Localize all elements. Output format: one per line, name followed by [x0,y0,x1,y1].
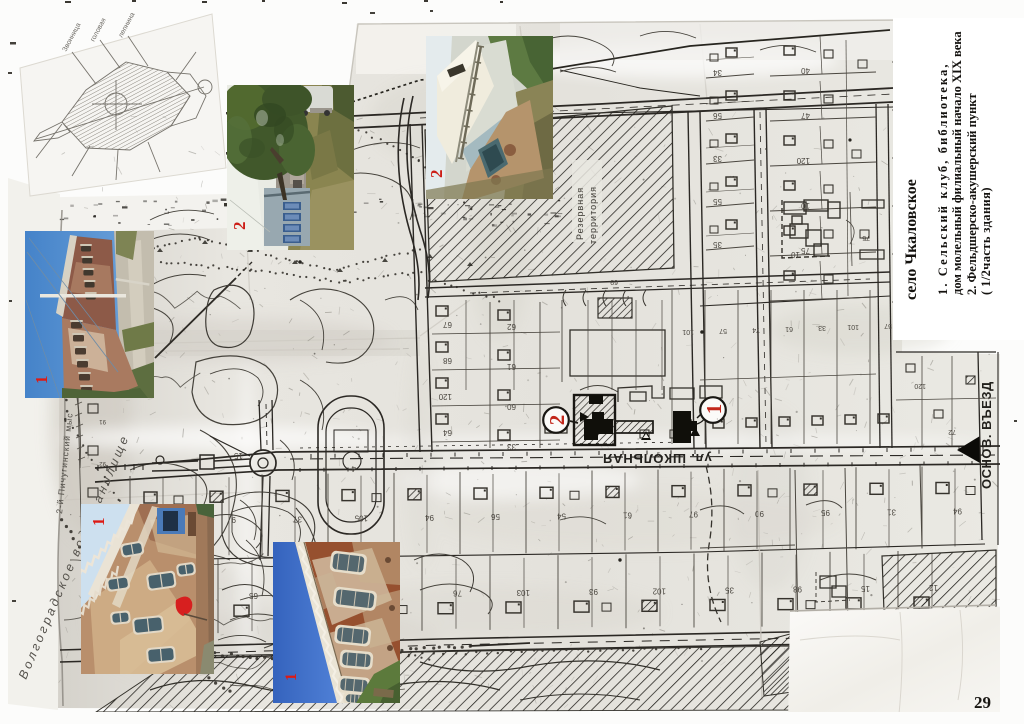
svg-text:территория: территория [588,186,598,244]
svg-text:2: 2 [230,222,249,231]
svg-text:101: 101 [847,323,859,330]
svg-text:10: 10 [791,250,800,259]
svg-text:дом молельный филиальный начал: дом молельный филиальный начало XIX века [950,31,964,295]
svg-text:29: 29 [974,693,991,712]
svg-text:56: 56 [491,512,500,521]
svg-text:15: 15 [234,451,243,460]
svg-text:35: 35 [725,585,734,594]
svg-text:64: 64 [443,428,452,437]
svg-text:94: 94 [953,506,962,515]
svg-text:Резервная: Резервная [575,187,585,240]
svg-text:33: 33 [713,154,722,163]
svg-text:47: 47 [801,111,810,120]
svg-text:2: 2 [427,170,446,179]
svg-text:( 1/2часть здания): ( 1/2часть здания) [979,187,993,295]
svg-text:57: 57 [884,322,892,329]
svg-text:120: 120 [914,382,926,389]
svg-text:69: 69 [610,278,618,285]
svg-text:105: 105 [354,514,368,523]
svg-text:2: 2 [545,415,569,426]
svg-text:61: 61 [785,325,793,332]
svg-text:ОСНОВ. ВЪЕЗД: ОСНОВ. ВЪЕЗД [979,381,994,489]
svg-text:76: 76 [453,589,462,598]
svg-text:103: 103 [516,588,530,597]
svg-text:101: 101 [682,328,694,335]
svg-text:62: 62 [507,322,516,331]
svg-text:1: 1 [89,518,108,527]
svg-text:34: 34 [713,68,722,77]
svg-text:120: 120 [438,392,452,401]
svg-text:1: 1 [702,404,726,415]
svg-text:37: 37 [293,514,302,523]
svg-text:15: 15 [861,584,870,593]
svg-text:61: 61 [507,362,516,371]
svg-text:68: 68 [443,356,452,365]
svg-text:55: 55 [713,197,722,206]
svg-text:4: 4 [351,464,356,473]
svg-text:ул. ШКОЛЬНАЯ: ул. ШКОЛЬНАЯ [602,451,712,466]
svg-text:40: 40 [801,66,810,75]
svg-text:75: 75 [801,246,810,255]
svg-text:1: 1 [283,673,300,681]
svg-text:74: 74 [752,326,760,333]
svg-text:35: 35 [713,240,722,249]
svg-text:95: 95 [821,508,830,517]
svg-text:село Чкаловское: село Чкаловское [903,179,920,300]
svg-text:2. Фельдшерско-акушерский пунк: 2. Фельдшерско-акушерский пункт [965,93,979,295]
svg-text:94: 94 [425,513,434,522]
svg-text:91: 91 [99,418,106,424]
svg-text:57: 57 [719,327,727,334]
svg-text:72: 72 [948,428,956,435]
svg-text:97: 97 [689,510,698,519]
svg-text:93: 93 [589,587,598,596]
svg-text:31: 31 [887,507,896,516]
svg-text:102: 102 [652,586,666,595]
svg-text:33: 33 [507,442,516,451]
svg-text:1. Сельский клуб, библиотека,: 1. Сельский клуб, библиотека, [936,62,950,295]
svg-text:1: 1 [32,376,51,385]
svg-text:60: 60 [507,402,516,411]
svg-text:56: 56 [713,111,722,120]
svg-text:120: 120 [796,156,810,165]
svg-text:67: 67 [443,320,452,329]
svg-text:33: 33 [818,324,826,331]
